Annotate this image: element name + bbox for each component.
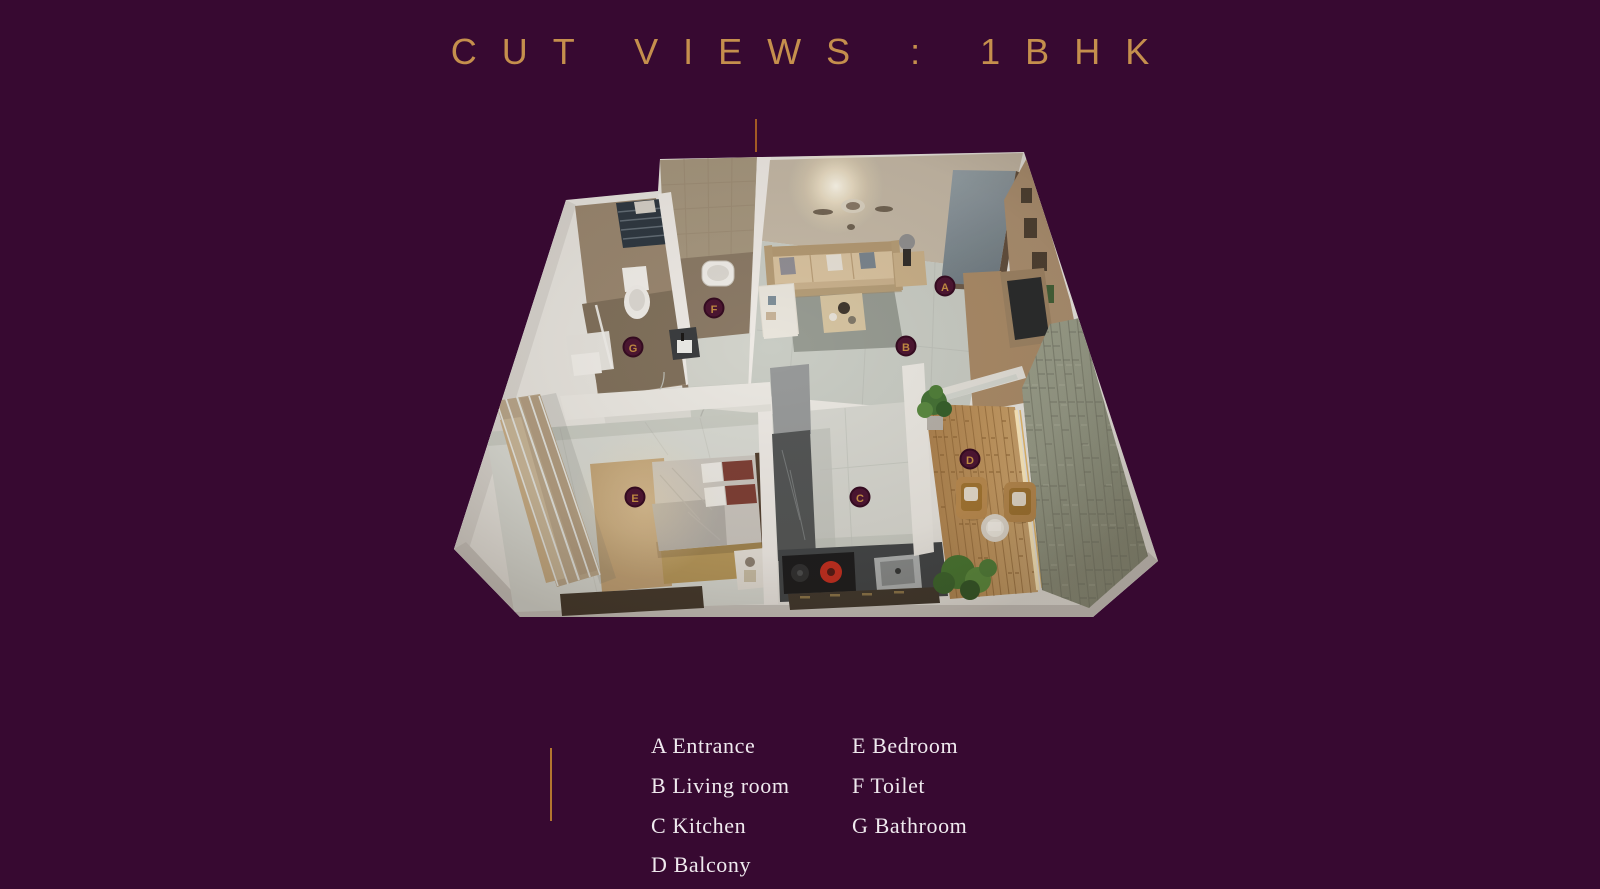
svg-text:A: A: [941, 282, 949, 294]
svg-text:E: E: [631, 493, 638, 505]
svg-text:G: G: [629, 343, 638, 355]
svg-text:C: C: [856, 493, 864, 505]
svg-text:D: D: [966, 455, 974, 467]
svg-text:B: B: [902, 342, 910, 354]
svg-text:F: F: [711, 304, 718, 316]
